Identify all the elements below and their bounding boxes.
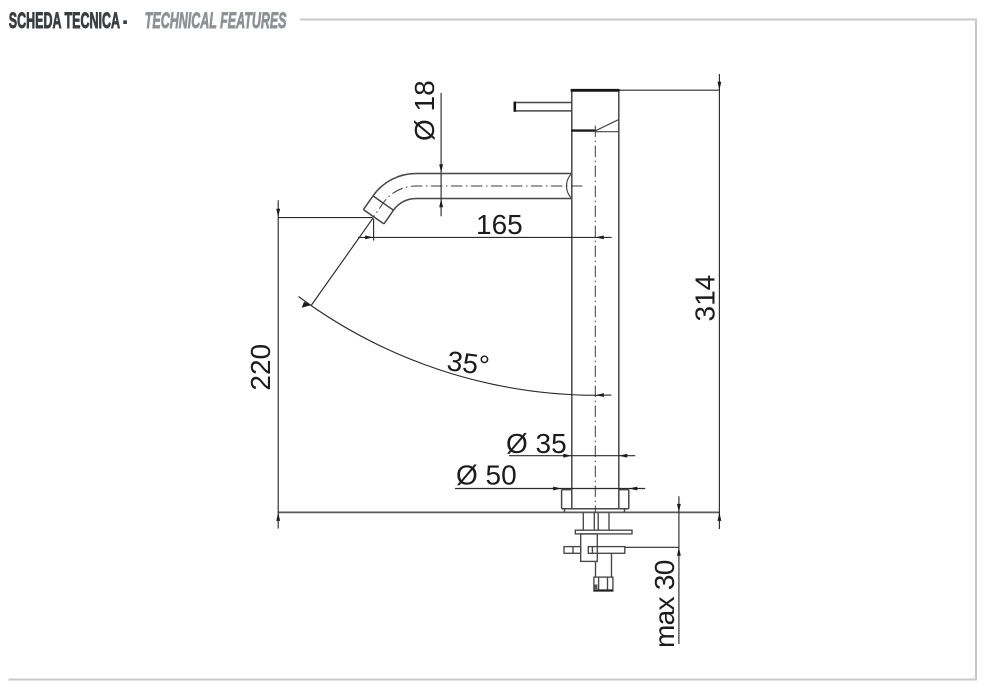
svg-text:165: 165 bbox=[476, 209, 523, 240]
svg-text:SCHEDA TECNICA -: SCHEDA TECNICA - bbox=[9, 8, 127, 33]
svg-text:35°: 35° bbox=[445, 345, 491, 381]
svg-text:Ø 35: Ø 35 bbox=[506, 428, 567, 459]
svg-text:220: 220 bbox=[245, 344, 276, 391]
svg-text:max 30: max 30 bbox=[649, 560, 680, 648]
svg-text:TECHNICAL FEATURES: TECHNICAL FEATURES bbox=[145, 8, 287, 33]
svg-text:Ø 18: Ø 18 bbox=[409, 80, 440, 141]
svg-text:314: 314 bbox=[689, 275, 720, 322]
svg-text:Ø 50: Ø 50 bbox=[456, 460, 517, 491]
